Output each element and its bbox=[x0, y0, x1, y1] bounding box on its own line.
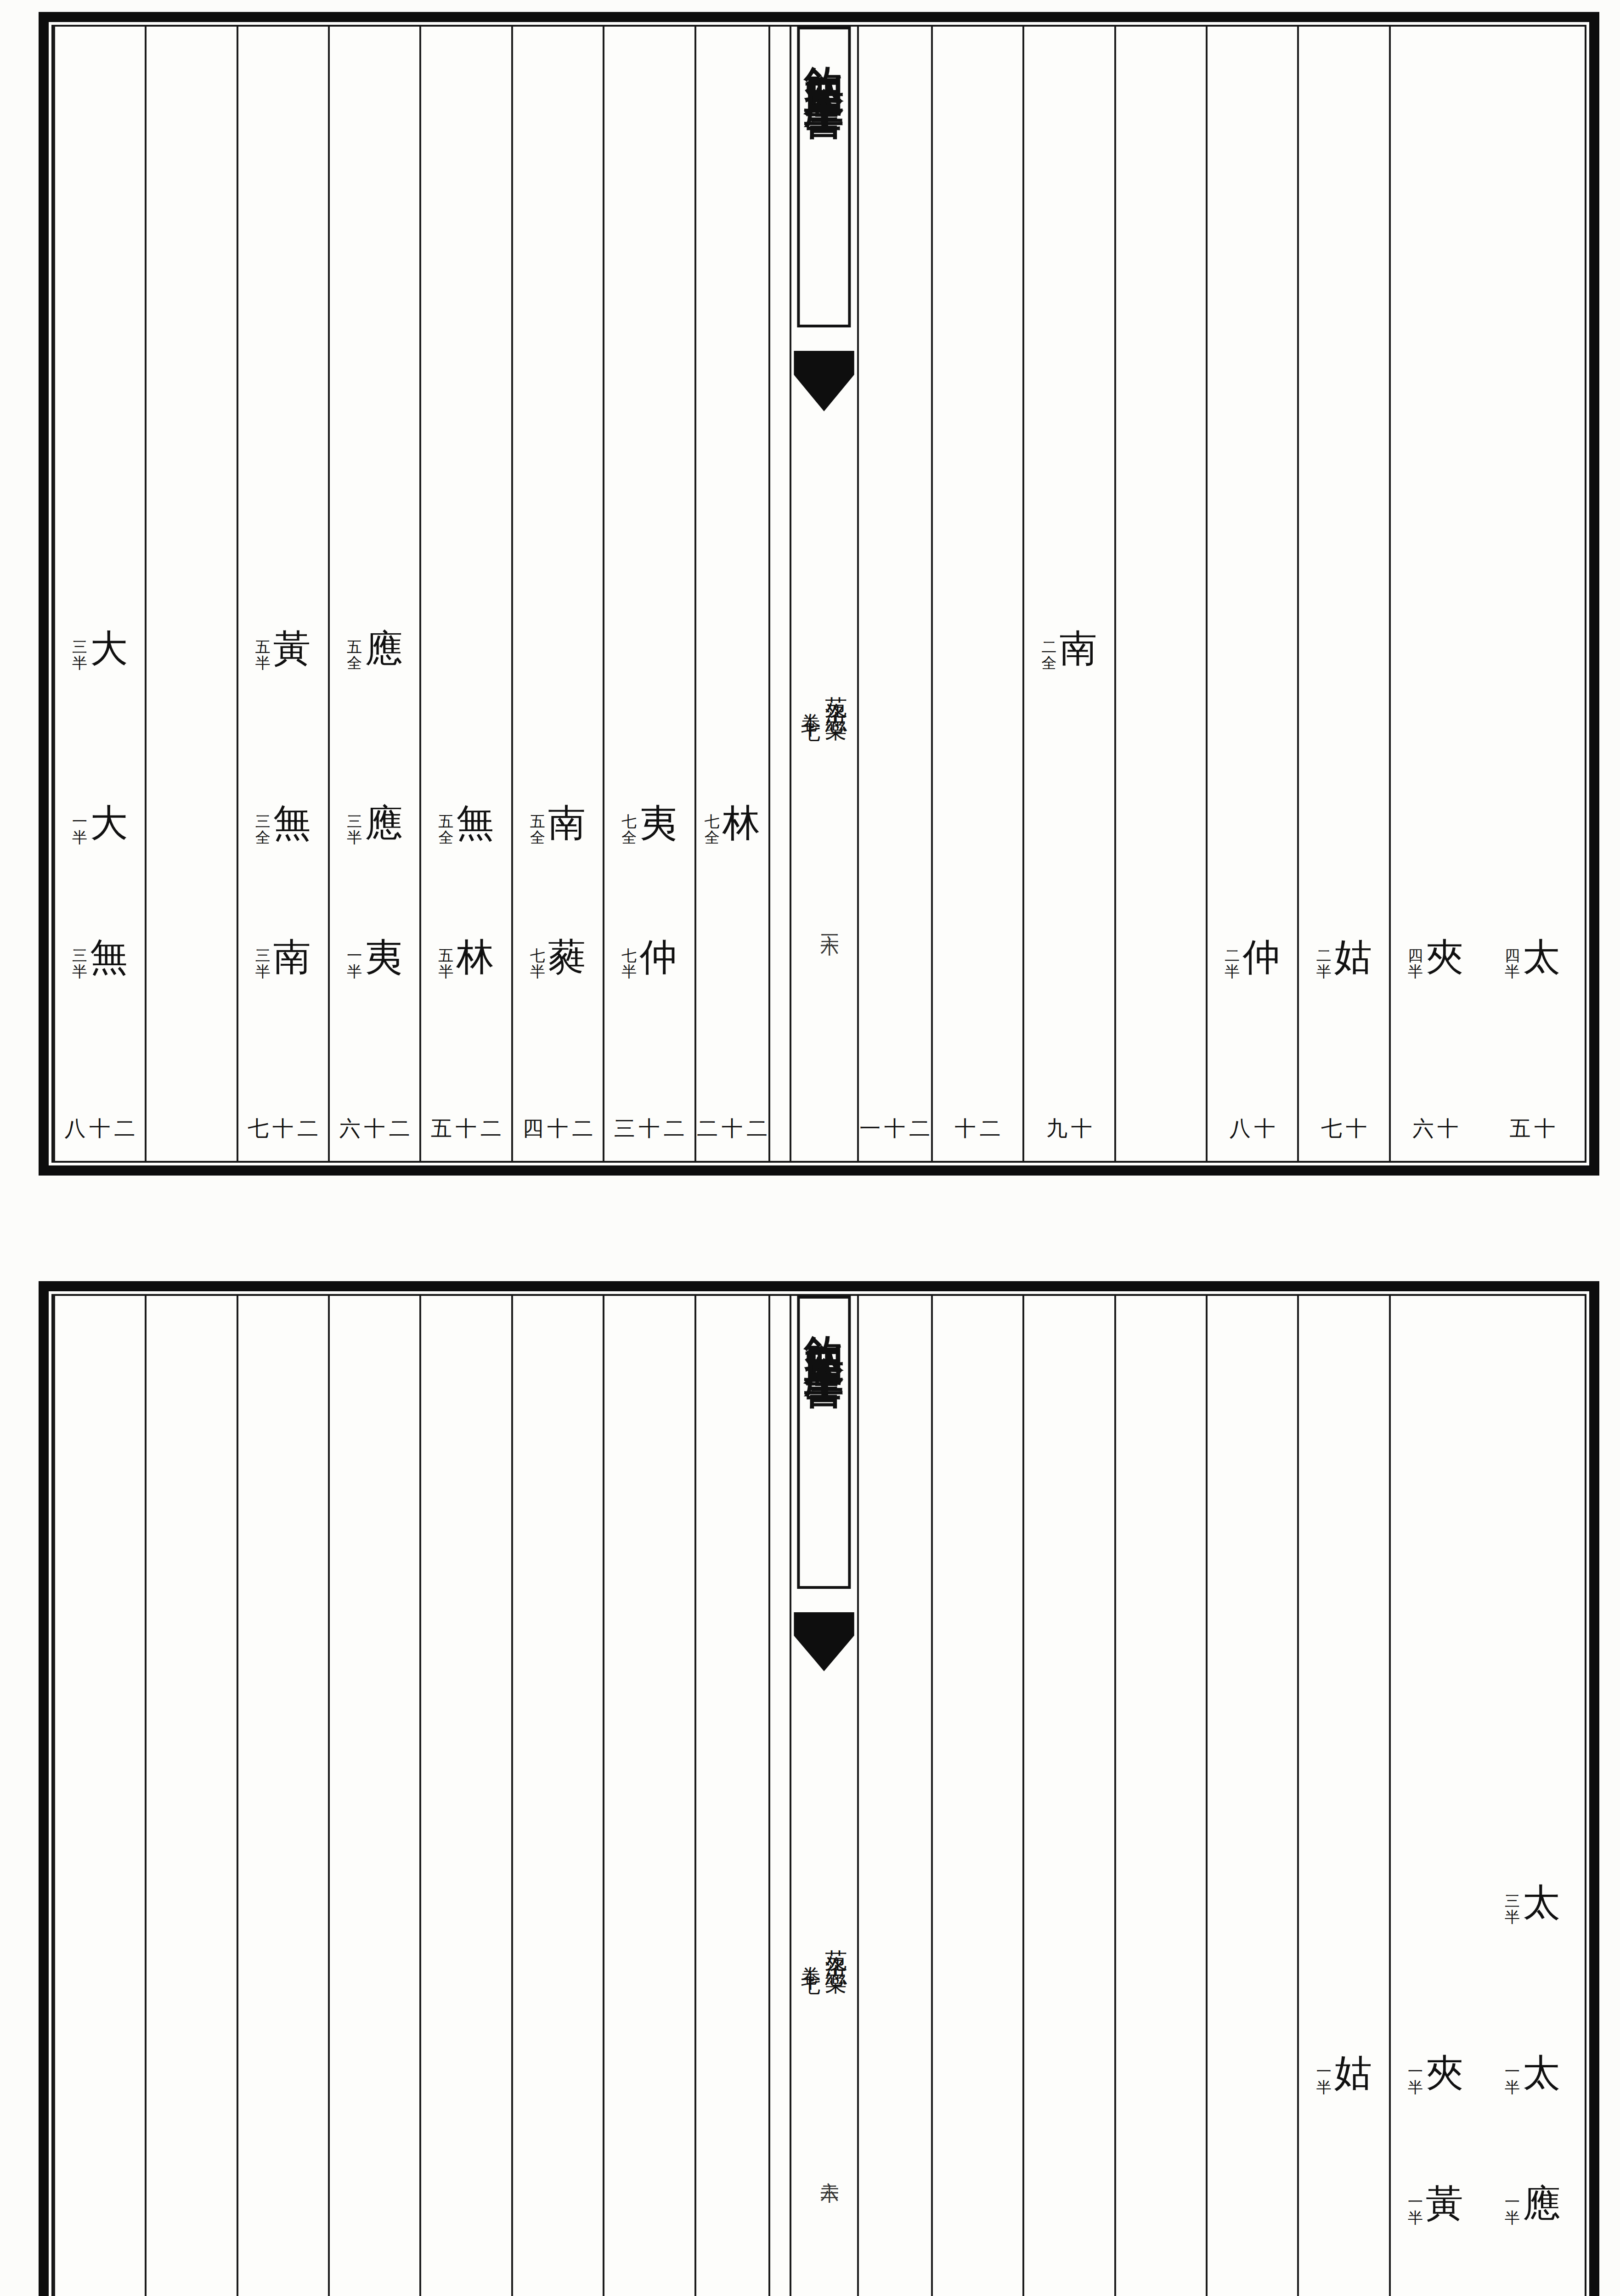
annotation-char: 半 bbox=[1505, 2210, 1520, 2226]
pitch-annotation: 五半 bbox=[439, 948, 454, 979]
scanned-book-page: 四半太十五四半夾十六二半姑十七二半仲十八二全南十九二十二十一 欽定四庫全書 卷十… bbox=[0, 0, 1620, 2296]
pitch-annotation: 七半 bbox=[530, 948, 545, 979]
pitch-annotation: 二全 bbox=[1042, 639, 1057, 671]
annotation-char: 七 bbox=[621, 814, 637, 830]
annotation-char: 半 bbox=[255, 964, 271, 980]
pitch-annotation: 三全 bbox=[255, 814, 271, 845]
annotation-char: 半 bbox=[1316, 2080, 1332, 2096]
pitch-entry: 一半大 bbox=[55, 805, 145, 845]
center-fold-column: 欽定四庫全書 卷十七 苑洛志樂 六十一 bbox=[790, 27, 857, 1161]
column-number-char: 九 bbox=[1046, 1118, 1067, 1139]
score-column bbox=[237, 1296, 328, 2296]
pitch-entry: 三半南 bbox=[238, 939, 328, 979]
annotation-char: 五 bbox=[439, 814, 454, 830]
annotation-char: 一 bbox=[72, 814, 87, 830]
book-title: 苑洛志樂 bbox=[825, 1932, 847, 1965]
column-number-char: 一 bbox=[859, 1118, 881, 1139]
pitch-entry: 一半夾 bbox=[1391, 2054, 1480, 2095]
column-number-char: 五 bbox=[431, 1118, 452, 1139]
annotation-char: 全 bbox=[255, 830, 271, 846]
pitch-char: 無 bbox=[90, 939, 128, 976]
pitch-annotation: 二半 bbox=[1225, 948, 1240, 979]
pitch-char: 應 bbox=[365, 630, 402, 668]
pitch-annotation: 三半 bbox=[255, 948, 271, 979]
score-column: 五半黃三全無三半南二十七 bbox=[237, 27, 328, 1161]
annotation-char: 半 bbox=[1225, 964, 1240, 980]
column-number-char: 二 bbox=[980, 1118, 1001, 1139]
pitch-entry: 二半仲 bbox=[1208, 939, 1297, 979]
pitch-char: 太 bbox=[1523, 1884, 1560, 1922]
center-fold-column: 欽定四庫全書 卷十七 苑洛志樂 六十二 bbox=[790, 1296, 857, 2296]
pitch-char: 大 bbox=[90, 630, 128, 668]
column-number: 十七 bbox=[1299, 1118, 1389, 1139]
annotation-char: 全 bbox=[621, 830, 637, 846]
pitch-char: 無 bbox=[457, 805, 494, 842]
pitch-char: 無 bbox=[273, 805, 311, 842]
pitch-entry: 一半夷 bbox=[330, 939, 419, 979]
score-column: 一半夾一半黃三十 bbox=[1389, 1296, 1480, 2296]
column-number-char: 五 bbox=[1510, 1118, 1531, 1139]
pitch-entry: 三半大 bbox=[55, 630, 145, 671]
pitch-entry: 二半姑 bbox=[1299, 939, 1389, 979]
column-grid: 三半太一半太一半應二十九一半夾一半黃三十一半姑三十一三十二三十三三十四三十五三十… bbox=[51, 1294, 1586, 2296]
annotation-char: 一 bbox=[1316, 2064, 1332, 2080]
pitch-entry: 四半太 bbox=[1480, 939, 1585, 979]
column-number-char: 二 bbox=[114, 1118, 135, 1139]
column-number-char: 二 bbox=[572, 1118, 593, 1139]
annotation-char: 半 bbox=[530, 964, 545, 980]
score-column: 七全夷七半仲二十三 bbox=[603, 27, 694, 1161]
pitch-annotation: 三半 bbox=[72, 948, 87, 979]
column-number: 二十三 bbox=[604, 1118, 694, 1139]
pitch-annotation: 七半 bbox=[621, 948, 637, 979]
column-number-char: 八 bbox=[65, 1118, 86, 1139]
pitch-entry: 三半太 bbox=[1480, 1884, 1585, 1925]
folio-number: 六十一 bbox=[820, 920, 839, 929]
column-number-char: 二 bbox=[664, 1118, 685, 1139]
annotation-char: 全 bbox=[705, 830, 720, 846]
annotation-char: 半 bbox=[1505, 1909, 1520, 1925]
pitch-annotation: 七全 bbox=[705, 814, 720, 845]
pitch-entry: 五全無 bbox=[421, 805, 511, 845]
scan-block-lower: 三半太一半太一半應二十九一半夾一半黃三十一半姑三十一三十二三十三三十四三十五三十… bbox=[39, 1281, 1599, 2296]
annotation-char: 半 bbox=[347, 964, 362, 980]
pitch-annotation: 一半 bbox=[1505, 2064, 1520, 2095]
column-number-char: 十 bbox=[456, 1118, 477, 1139]
score-column: 七全林二十二 bbox=[694, 27, 768, 1161]
pitch-entry: 一半黃 bbox=[1391, 2185, 1480, 2226]
column-number: 十九 bbox=[1024, 1118, 1114, 1139]
score-column bbox=[1114, 27, 1206, 1161]
score-column: 二半姑十七 bbox=[1297, 27, 1389, 1161]
score-column: 二十一 bbox=[857, 27, 931, 1161]
annotation-char: 半 bbox=[1505, 964, 1520, 980]
annotation-char: 全 bbox=[1042, 655, 1057, 671]
annotation-char: 半 bbox=[1408, 2080, 1423, 2096]
pitch-annotation: 一半 bbox=[1505, 2194, 1520, 2226]
juan-label: 卷十七 bbox=[801, 698, 820, 712]
pitch-entry: 四半夾 bbox=[1391, 939, 1480, 979]
score-column: 三十二 bbox=[1206, 1296, 1297, 2296]
score-column: 三半太一半太一半應二十九 bbox=[1480, 1296, 1585, 2296]
column-number-char: 十 bbox=[884, 1118, 905, 1139]
score-column: 一半姑三十一 bbox=[1297, 1296, 1389, 2296]
pitch-annotation: 三半 bbox=[72, 639, 87, 671]
annotation-char: 七 bbox=[705, 814, 720, 830]
pitch-char: 夾 bbox=[1426, 2054, 1463, 2092]
series-title: 欽定四庫全書 bbox=[804, 36, 844, 74]
pitch-entry: 五半林 bbox=[421, 939, 511, 979]
column-number-char: 十 bbox=[90, 1118, 111, 1139]
column-number-char: 十 bbox=[1346, 1118, 1367, 1139]
pitch-char: 太 bbox=[1523, 939, 1560, 976]
column-number: 二十七 bbox=[238, 1118, 328, 1139]
column-number: 二十四 bbox=[513, 1118, 603, 1139]
score-column bbox=[603, 1296, 694, 2296]
pitch-annotation: 一半 bbox=[1408, 2194, 1423, 2226]
annotation-char: 三 bbox=[255, 948, 271, 964]
score-column: 三十五 bbox=[931, 1296, 1022, 2296]
score-column: 二半仲十八 bbox=[1206, 27, 1297, 1161]
pitch-entry: 三半應 bbox=[330, 805, 419, 845]
pitch-char: 夷 bbox=[639, 805, 677, 842]
folio-number: 六十二 bbox=[820, 2167, 839, 2176]
book-title: 苑洛志樂 bbox=[825, 679, 847, 712]
pitch-char: 黃 bbox=[1426, 2185, 1463, 2223]
column-number-char: 十 bbox=[722, 1118, 743, 1139]
pitch-entry: 五半黃 bbox=[238, 630, 328, 671]
fishtail-mark-icon bbox=[794, 1612, 854, 1681]
column-number-char: 十 bbox=[955, 1118, 976, 1139]
score-column: 三十三 bbox=[1114, 1296, 1206, 2296]
scan-block-upper: 四半太十五四半夾十六二半姑十七二半仲十八二全南十九二十二十一 欽定四庫全書 卷十… bbox=[39, 12, 1599, 1176]
pitch-char: 夾 bbox=[1426, 939, 1463, 976]
annotation-char: 三 bbox=[347, 814, 362, 830]
column-number-char: 六 bbox=[1413, 1118, 1434, 1139]
pitch-char: 姑 bbox=[1334, 939, 1372, 976]
annotation-char: 半 bbox=[1408, 964, 1423, 980]
spacer-column bbox=[768, 27, 790, 1161]
annotation-char: 七 bbox=[621, 948, 637, 964]
pitch-entry: 七半蕤 bbox=[513, 939, 603, 979]
score-column: 五全無五半林二十五 bbox=[419, 27, 511, 1161]
column-number: 十八 bbox=[1208, 1118, 1297, 1139]
annotation-char: 一 bbox=[1505, 2194, 1520, 2210]
score-column bbox=[419, 1296, 511, 2296]
column-grid: 四半太十五四半夾十六二半姑十七二半仲十八二全南十九二十二十一 欽定四庫全書 卷十… bbox=[51, 25, 1586, 1163]
column-number-char: 二 bbox=[746, 1118, 768, 1139]
pitch-annotation: 七全 bbox=[621, 814, 637, 845]
score-column bbox=[694, 1296, 768, 2296]
score-column: 三十四 bbox=[1022, 1296, 1114, 2296]
annotation-char: 一 bbox=[1505, 2064, 1520, 2080]
pitch-annotation: 四半 bbox=[1408, 948, 1423, 979]
pitch-annotation: 一半 bbox=[347, 948, 362, 979]
annotation-char: 半 bbox=[621, 964, 637, 980]
column-number-char: 二 bbox=[297, 1118, 318, 1139]
pitch-entry: 一半姑 bbox=[1299, 2054, 1389, 2095]
pitch-entry: 五全應 bbox=[330, 630, 419, 671]
annotation-char: 三 bbox=[72, 948, 87, 964]
annotation-char: 三 bbox=[255, 814, 271, 830]
annotation-char: 半 bbox=[1316, 964, 1332, 980]
column-number-char: 十 bbox=[1438, 1118, 1459, 1139]
pitch-entry: 七全夷 bbox=[604, 805, 694, 845]
pitch-char: 林 bbox=[457, 939, 494, 976]
pitch-entry: 二全南 bbox=[1024, 630, 1114, 671]
pitch-char: 應 bbox=[1523, 2185, 1560, 2223]
book-title-group: 卷十七 苑洛志樂 bbox=[791, 679, 857, 712]
annotation-char: 一 bbox=[347, 948, 362, 964]
annotation-char: 四 bbox=[1408, 948, 1423, 964]
pitch-char: 林 bbox=[723, 805, 760, 842]
annotation-char: 五 bbox=[530, 814, 545, 830]
pitch-char: 夷 bbox=[365, 939, 402, 976]
column-number-char: 二 bbox=[480, 1118, 502, 1139]
annotation-char: 二 bbox=[1316, 948, 1332, 964]
column-number-char: 二 bbox=[389, 1118, 410, 1139]
annotation-char: 四 bbox=[1505, 948, 1520, 964]
column-number: 二十六 bbox=[330, 1118, 419, 1139]
score-column: 五全南七半蕤二十四 bbox=[511, 27, 603, 1161]
score-column: 三半大一半大三半無二十八 bbox=[53, 27, 145, 1161]
pitch-annotation: 二半 bbox=[1316, 948, 1332, 979]
column-number-char: 十 bbox=[1071, 1118, 1092, 1139]
pitch-annotation: 一半 bbox=[1316, 2064, 1332, 2095]
pitch-char: 南 bbox=[273, 939, 311, 976]
annotation-char: 七 bbox=[530, 948, 545, 964]
pitch-annotation: 三半 bbox=[1505, 1893, 1520, 1925]
score-column bbox=[53, 1296, 145, 2296]
column-number-char: 二 bbox=[697, 1118, 718, 1139]
score-column: 二全南十九 bbox=[1022, 27, 1114, 1161]
annotation-char: 全 bbox=[347, 655, 362, 671]
score-column: 五全應三半應一半夷二十六 bbox=[328, 27, 419, 1161]
annotation-char: 三 bbox=[72, 639, 87, 655]
column-number-char: 八 bbox=[1230, 1118, 1251, 1139]
score-column: 二十 bbox=[931, 27, 1022, 1161]
annotation-char: 二 bbox=[1042, 639, 1057, 655]
pitch-char: 仲 bbox=[1242, 939, 1280, 976]
score-column: 四半夾十六 bbox=[1389, 27, 1480, 1161]
annotation-char: 半 bbox=[72, 830, 87, 846]
pitch-annotation: 一半 bbox=[72, 814, 87, 845]
annotation-char: 二 bbox=[1225, 948, 1240, 964]
column-number-char: 十 bbox=[547, 1118, 568, 1139]
annotation-char: 全 bbox=[439, 830, 454, 846]
pitch-entry: 一半太 bbox=[1480, 2054, 1585, 2095]
pitch-char: 黃 bbox=[273, 630, 311, 668]
pitch-entry: 七全林 bbox=[696, 805, 768, 845]
pitch-annotation: 五半 bbox=[255, 639, 271, 671]
column-number-char: 十 bbox=[272, 1118, 294, 1139]
column-number-char: 十 bbox=[1535, 1118, 1556, 1139]
column-number-char: 十 bbox=[639, 1118, 660, 1139]
spacer-column bbox=[768, 1296, 790, 2296]
annotation-char: 半 bbox=[1408, 2210, 1423, 2226]
annotation-char: 半 bbox=[1505, 2080, 1520, 2096]
annotation-char: 半 bbox=[72, 964, 87, 980]
score-column bbox=[328, 1296, 419, 2296]
pitch-char: 太 bbox=[1523, 2054, 1560, 2092]
pitch-annotation: 五全 bbox=[439, 814, 454, 845]
annotation-char: 一 bbox=[1408, 2194, 1423, 2210]
annotation-char: 全 bbox=[530, 830, 545, 846]
column-number: 二十五 bbox=[421, 1118, 511, 1139]
annotation-char: 一 bbox=[1408, 2064, 1423, 2080]
series-title: 欽定四庫全書 bbox=[804, 1305, 844, 1344]
column-number: 二十 bbox=[933, 1118, 1022, 1139]
column-number-char: 十 bbox=[1254, 1118, 1276, 1139]
column-number-char: 七 bbox=[248, 1118, 269, 1139]
score-column bbox=[511, 1296, 603, 2296]
pitch-entry: 七半仲 bbox=[604, 939, 694, 979]
pitch-char: 蕤 bbox=[548, 939, 586, 976]
juan-label: 卷十七 bbox=[801, 1951, 820, 1965]
pitch-entry: 三全無 bbox=[238, 805, 328, 845]
column-number-char: 二 bbox=[909, 1118, 930, 1139]
annotation-char: 半 bbox=[72, 655, 87, 671]
pitch-entry: 三半無 bbox=[55, 939, 145, 979]
annotation-char: 半 bbox=[255, 655, 271, 671]
column-number: 二十一 bbox=[859, 1118, 931, 1139]
pitch-char: 大 bbox=[90, 805, 128, 842]
pitch-char: 南 bbox=[1060, 630, 1097, 668]
column-number-char: 七 bbox=[1321, 1118, 1342, 1139]
annotation-char: 五 bbox=[255, 639, 271, 655]
fishtail-mark-icon bbox=[794, 351, 854, 421]
pitch-annotation: 五全 bbox=[347, 639, 362, 671]
column-number-char: 十 bbox=[364, 1118, 385, 1139]
column-number: 二十八 bbox=[55, 1118, 145, 1139]
pitch-annotation: 五全 bbox=[530, 814, 545, 845]
column-number-char: 三 bbox=[614, 1118, 635, 1139]
annotation-char: 半 bbox=[347, 830, 362, 846]
pitch-annotation: 一半 bbox=[1408, 2064, 1423, 2095]
column-number-char: 四 bbox=[522, 1118, 543, 1139]
series-title-box: 欽定四庫全書 bbox=[797, 1296, 851, 1589]
pitch-char: 應 bbox=[365, 805, 402, 842]
annotation-char: 五 bbox=[439, 948, 454, 964]
column-number: 十五 bbox=[1480, 1118, 1585, 1139]
pitch-annotation: 三半 bbox=[347, 814, 362, 845]
score-column: 四半太十五 bbox=[1480, 27, 1585, 1161]
pitch-annotation: 四半 bbox=[1505, 948, 1520, 979]
score-column bbox=[145, 27, 236, 1161]
annotation-char: 五 bbox=[347, 639, 362, 655]
annotation-char: 半 bbox=[439, 964, 454, 980]
pitch-char: 仲 bbox=[639, 939, 677, 976]
pitch-entry: 五全南 bbox=[513, 805, 603, 845]
column-number-char: 六 bbox=[339, 1118, 361, 1139]
annotation-char: 三 bbox=[1505, 1893, 1520, 1909]
book-title-group: 卷十七 苑洛志樂 bbox=[791, 1932, 857, 1965]
score-column: 三十六 bbox=[857, 1296, 931, 2296]
series-title-box: 欽定四庫全書 bbox=[797, 27, 851, 327]
column-number: 十六 bbox=[1391, 1118, 1480, 1139]
pitch-char: 姑 bbox=[1334, 2054, 1372, 2092]
column-number: 二十二 bbox=[696, 1118, 768, 1139]
pitch-char: 南 bbox=[548, 805, 586, 842]
pitch-entry: 一半應 bbox=[1480, 2185, 1585, 2226]
score-column bbox=[145, 1296, 236, 2296]
